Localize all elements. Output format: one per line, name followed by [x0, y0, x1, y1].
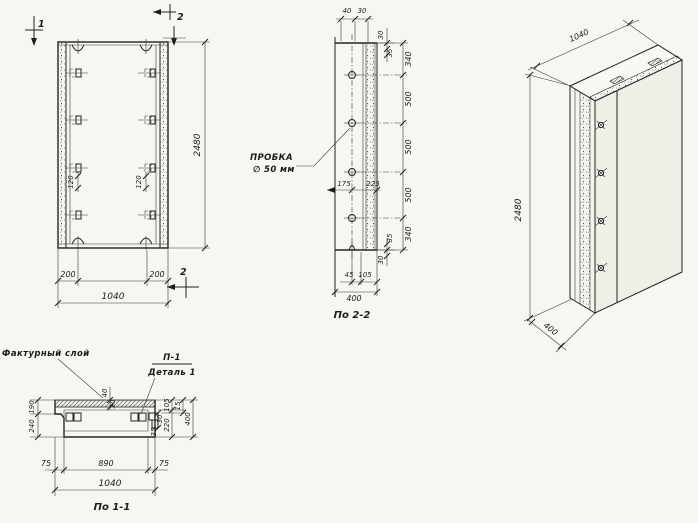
dim-det-35: 35: [150, 427, 158, 436]
dim-right-105: 105: [163, 398, 171, 412]
detail-name-label: Деталь 1: [147, 368, 196, 378]
isometric-view: 1040 2480 400: [514, 20, 682, 352]
dim-right-400: 400: [184, 412, 192, 426]
detail-ref-label: П-1: [163, 353, 181, 363]
dim-loop-left: 120: [67, 175, 75, 189]
section-mark-1: 1: [25, 16, 45, 46]
plug-label-line1: ПРОБКА: [250, 153, 293, 163]
dim-top-40: 40: [343, 7, 352, 15]
dim-top-40: 40: [101, 388, 109, 397]
dim-det-30: 30: [156, 414, 164, 423]
section-2-2-caption: По 2-2: [334, 310, 371, 321]
dim-edge-bottom-30: 30: [377, 255, 385, 264]
section-1-1-caption: По 1-1: [94, 502, 131, 513]
dim-chain-2: 500: [404, 139, 413, 154]
dim-bottom-1040: 1040: [99, 479, 122, 489]
iso-front-face: [595, 60, 682, 313]
dim-bottom-75-left: 75: [41, 459, 51, 468]
dim-bottom-75-right: 75: [159, 459, 169, 468]
lifting-hooks: [72, 39, 152, 250]
drawing-sheet: 120 120 2480 200 200 1040 1 2: [0, 0, 698, 523]
dim-edge-top-30: 30: [377, 30, 385, 39]
embedded-anchors: [66, 413, 146, 421]
section-mark-2-top: 2: [153, 4, 186, 46]
dim-bottom-890: 890: [98, 459, 113, 468]
left-rib-strip: [58, 42, 66, 248]
section-mark-2-top-label: 2: [177, 12, 184, 23]
dim-hole-225: 225: [366, 180, 380, 188]
right-rib-strip: [160, 42, 168, 248]
facing-layer-strip: [55, 400, 155, 407]
dim-left-240: 240: [28, 419, 36, 433]
dim-bottom-45: 45: [345, 271, 354, 279]
dim-height: 2480: [193, 133, 203, 156]
dim-bottom-105: 105: [358, 271, 372, 279]
anchor-loops: [65, 69, 161, 219]
iso-dim-width: 1040: [568, 27, 590, 44]
dim-chain-0: 340: [404, 51, 413, 66]
iso-groove-strip: [580, 92, 590, 310]
dim-width: 1040: [102, 292, 125, 302]
dim-right-200: 200: [149, 270, 164, 279]
iso-dim-height: 2480: [514, 198, 524, 221]
concrete-rib-section: [366, 43, 375, 250]
dim-chain-1: 500: [404, 91, 413, 106]
dimension-ticks: [35, 16, 633, 493]
dim-width-400: 400: [346, 294, 361, 303]
section-1-1-view: 40 30 190 240 105 15 220 400 30 35 75 89…: [2, 349, 198, 513]
facing-layer-label: Фактурный слой: [2, 349, 90, 359]
plug-label-line2: ∅ 50 мм: [253, 165, 295, 175]
dim-top-30: 30: [358, 7, 367, 15]
detail-leader: [141, 378, 155, 414]
plug-leader-line: [296, 128, 350, 166]
panel-drawing: 120 120 2480 200 200 1040 1 2: [0, 0, 698, 523]
dim-chain-3: 500: [404, 187, 413, 202]
front-elevation-view: 120 120 2480 200 200 1040 1 2: [25, 4, 210, 308]
facing-layer-leader: [58, 359, 103, 398]
dim-loop-right: 120: [135, 175, 143, 189]
dim-left-200: 200: [60, 270, 75, 279]
section-mark-1-label: 1: [38, 19, 45, 30]
dim-right-220: 220: [163, 418, 171, 432]
dim-chain-4: 340: [404, 226, 413, 241]
iso-dim-depth: 400: [542, 321, 560, 338]
dim-left-190: 190: [28, 400, 36, 414]
dim-hole-175: 175: [337, 180, 351, 188]
section-mark-2-bottom: 2: [167, 267, 199, 298]
section-mark-2-bottom-label: 2: [180, 267, 187, 278]
